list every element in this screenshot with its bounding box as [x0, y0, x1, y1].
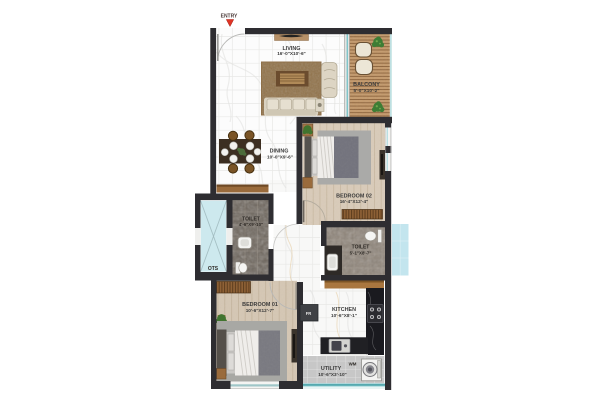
svg-text:WM: WM	[349, 362, 357, 367]
svg-text:16'-0"X10'-6": 16'-0"X10'-6"	[277, 51, 306, 56]
svg-text:10'-0"X9'-6": 10'-0"X9'-6"	[267, 154, 293, 159]
svg-text:5'-1"X8'-7": 5'-1"X8'-7"	[350, 251, 372, 256]
svg-text:10'-6"X8'-1": 10'-6"X8'-1"	[331, 313, 357, 318]
svg-text:16'-4"X12'-4": 16'-4"X12'-4"	[340, 199, 369, 204]
svg-text:5'-0"X10'-2": 5'-0"X10'-2"	[354, 88, 380, 93]
svg-text:OTS: OTS	[208, 266, 219, 272]
svg-text:4'-6"X9'-10": 4'-6"X9'-10"	[239, 222, 263, 227]
svg-text:10'-6"X3'-10": 10'-6"X3'-10"	[318, 372, 347, 377]
svg-text:ENTRY: ENTRY	[221, 14, 238, 20]
svg-text:FR: FR	[306, 311, 312, 316]
svg-text:10'-6"X12'-7": 10'-6"X12'-7"	[246, 308, 275, 313]
